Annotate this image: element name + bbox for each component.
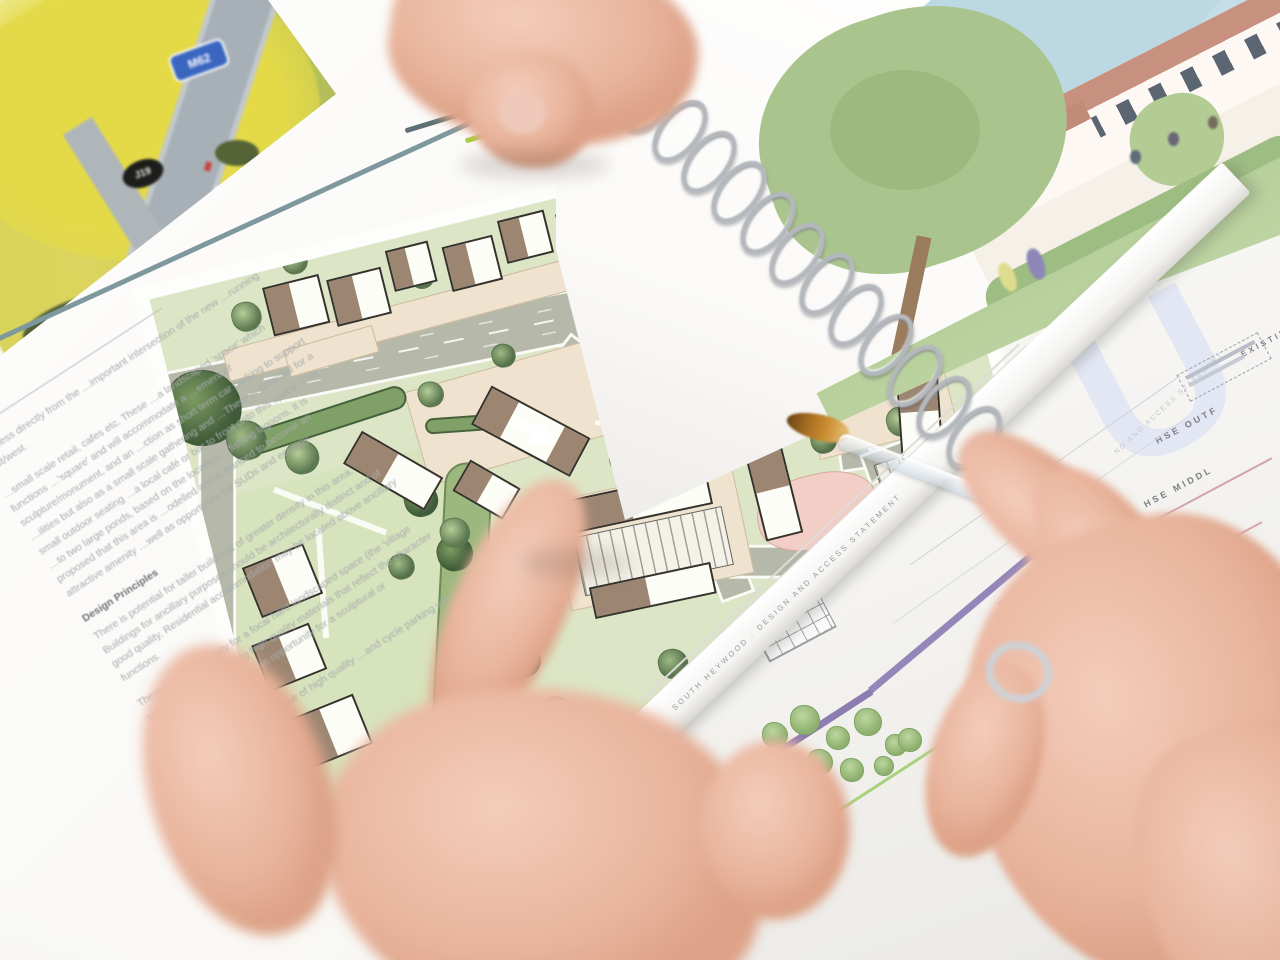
finger-shadow xyxy=(520,548,630,578)
knuckle-bump xyxy=(700,740,850,920)
thumbnail xyxy=(498,92,546,134)
thumb-shadow xyxy=(460,152,610,178)
photo-of-planning-document: M62 J19 …access directly from the …impor… xyxy=(0,0,1280,960)
